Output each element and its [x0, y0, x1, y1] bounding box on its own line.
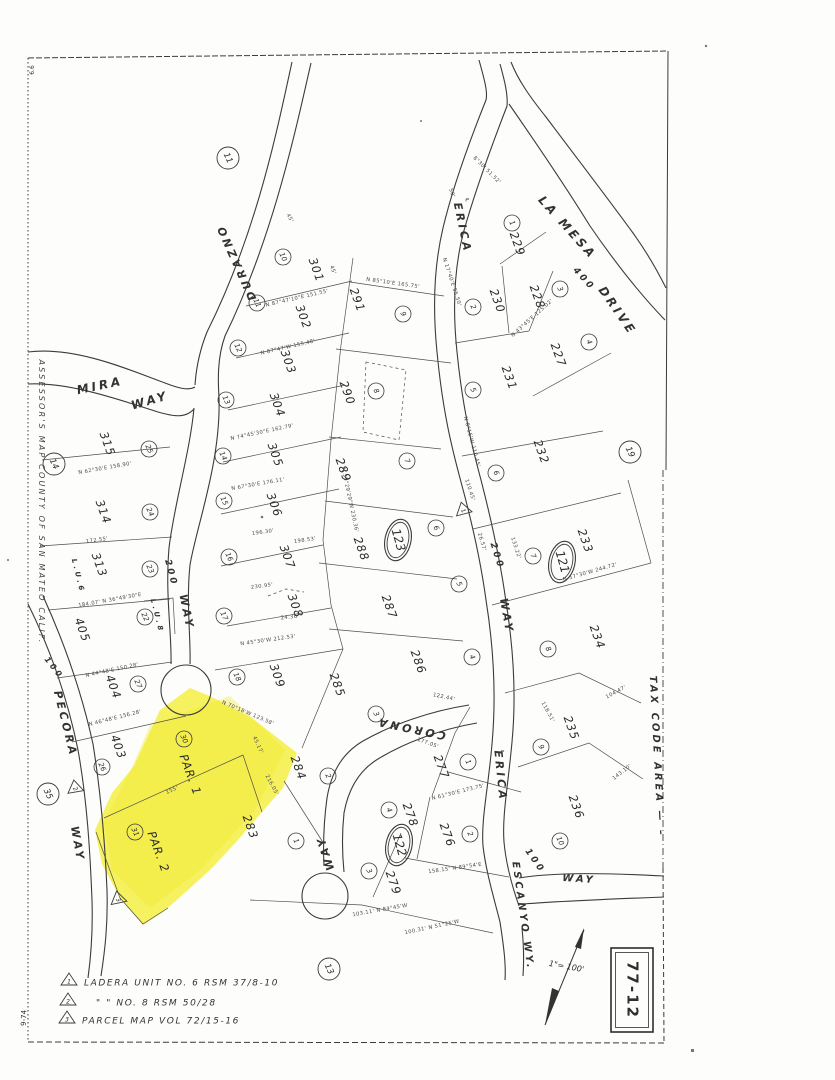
- scanned-assessor-map-page: 1"= 100' 77-12 ASSESSOR'S MAP COUNTY OF …: [0, 0, 835, 1080]
- legend-triangle-number: 3: [65, 1017, 69, 1024]
- legend-row-text: " " NO. 8 RSM 50/28: [96, 999, 217, 1009]
- legend-row-text: PARCEL MAP VOL 72/15-16: [82, 1017, 240, 1027]
- legend-row-text: LADERA UNIT NO. 6 RSM 37/8-10: [84, 979, 279, 989]
- legend-triangle-number: 2: [66, 999, 70, 1006]
- legend-triangle-number: 1: [67, 979, 71, 986]
- street-label: WAY: [562, 873, 596, 886]
- corner-mark-bottom: 9-74: [20, 1009, 29, 1026]
- sheet-number: 77-12: [624, 961, 642, 1019]
- corner-mark-top: 6.6: [29, 65, 36, 75]
- assessor-map-sheet: 1"= 100' 77-12 ASSESSOR'S MAP COUNTY OF …: [0, 0, 835, 1080]
- side-title: ASSESSOR'S MAP COUNTY OF SAN MATEO CALIF…: [37, 358, 46, 644]
